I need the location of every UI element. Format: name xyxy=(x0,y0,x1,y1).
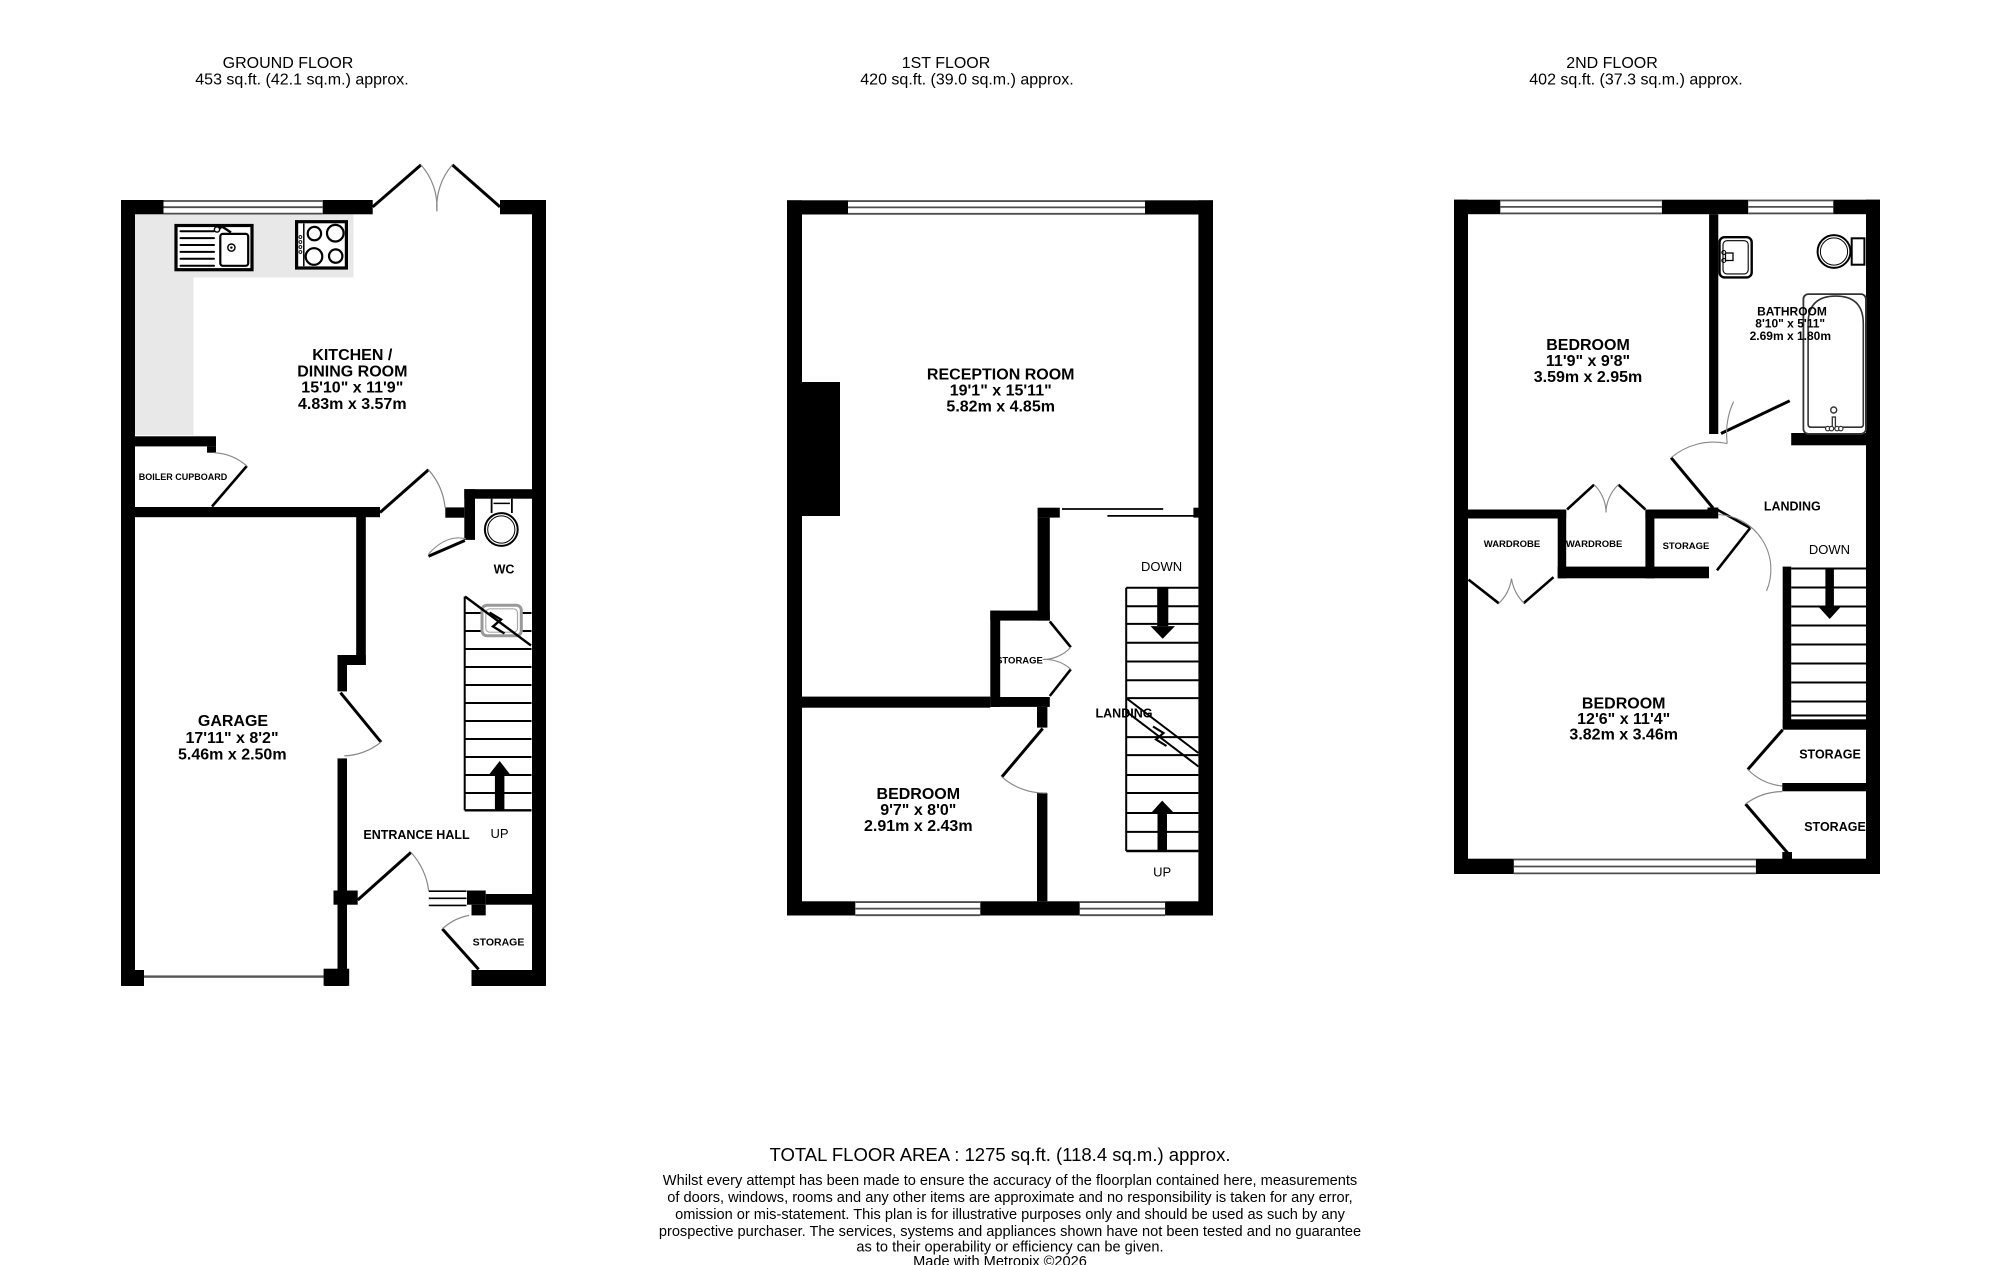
svg-text:5.82m x 4.85m: 5.82m x 4.85m xyxy=(946,399,1055,416)
svg-text:BEDROOM: BEDROOM xyxy=(1546,337,1630,354)
svg-text:5.46m x 2.50m: 5.46m x 2.50m xyxy=(178,747,287,764)
svg-text:WC: WC xyxy=(494,563,515,577)
svg-text:17'11" x 8'2": 17'11" x 8'2" xyxy=(185,730,278,747)
svg-text:3.82m x 3.46m: 3.82m x 3.46m xyxy=(1569,727,1678,744)
svg-text:prospective purchaser. The ser: prospective purchaser. The services, sys… xyxy=(659,1224,1361,1240)
svg-text:11'9" x 9'8": 11'9" x 9'8" xyxy=(1546,353,1630,370)
svg-text:2.91m x 2.43m: 2.91m x 2.43m xyxy=(864,818,973,835)
svg-text:402 sq.ft. (37.3 sq.m.) approx: 402 sq.ft. (37.3 sq.m.) approx. xyxy=(1529,72,1742,89)
svg-text:of doors, windows, rooms and a: of doors, windows, rooms and any other i… xyxy=(667,1190,1352,1206)
svg-text:4.83m x 3.57m: 4.83m x 3.57m xyxy=(298,396,407,413)
svg-text:LANDING: LANDING xyxy=(1096,707,1153,721)
svg-text:KITCHEN /: KITCHEN / xyxy=(312,347,393,364)
svg-text:WARDROBE: WARDROBE xyxy=(1484,539,1540,550)
svg-text:BOILER CUPBOARD: BOILER CUPBOARD xyxy=(139,472,228,482)
svg-text:DOWN: DOWN xyxy=(1141,559,1182,574)
svg-text:DINING ROOM: DINING ROOM xyxy=(297,363,407,380)
svg-text:9'7" x 8'0": 9'7" x 8'0" xyxy=(880,802,956,819)
svg-text:19'1" x 15'11": 19'1" x 15'11" xyxy=(950,383,1052,400)
svg-text:1ST FLOOR: 1ST FLOOR xyxy=(902,55,991,72)
svg-text:GROUND FLOOR: GROUND FLOOR xyxy=(223,55,354,72)
svg-text:LANDING: LANDING xyxy=(1764,499,1821,513)
svg-text:STORAGE: STORAGE xyxy=(1799,748,1861,762)
svg-text:RECEPTION ROOM: RECEPTION ROOM xyxy=(927,367,1075,384)
svg-text:Made with Metropix ©2026: Made with Metropix ©2026 xyxy=(913,1254,1087,1265)
svg-text:GARAGE: GARAGE xyxy=(198,713,269,730)
svg-text:DOWN: DOWN xyxy=(1809,542,1850,557)
svg-text:omission or mis-statement. Thi: omission or mis-statement. This plan is … xyxy=(675,1207,1345,1223)
svg-text:BEDROOM: BEDROOM xyxy=(1582,696,1666,713)
svg-text:453 sq.ft. (42.1 sq.m.) approx: 453 sq.ft. (42.1 sq.m.) approx. xyxy=(195,72,408,89)
svg-text:UP: UP xyxy=(490,826,508,841)
svg-text:12'6" x 11'4": 12'6" x 11'4" xyxy=(1577,711,1670,728)
svg-text:15'10" x 11'9": 15'10" x 11'9" xyxy=(301,380,403,397)
svg-text:3.59m x 2.95m: 3.59m x 2.95m xyxy=(1534,369,1643,386)
svg-text:UP: UP xyxy=(1153,864,1171,879)
svg-text:TOTAL FLOOR AREA : 1275 sq.ft.: TOTAL FLOOR AREA : 1275 sq.ft. (118.4 sq… xyxy=(770,1144,1231,1165)
svg-text:BEDROOM: BEDROOM xyxy=(877,786,961,803)
svg-text:STORAGE: STORAGE xyxy=(996,656,1043,667)
svg-text:STORAGE: STORAGE xyxy=(1804,820,1866,834)
svg-text:2ND FLOOR: 2ND FLOOR xyxy=(1566,55,1658,72)
svg-text:Whilst every attempt has been: Whilst every attempt has been made to en… xyxy=(663,1173,1357,1189)
svg-text:WARDROBE: WARDROBE xyxy=(1566,539,1622,550)
svg-text:ENTRANCE HALL: ENTRANCE HALL xyxy=(363,828,470,842)
svg-text:STORAGE: STORAGE xyxy=(473,937,525,949)
svg-text:STORAGE: STORAGE xyxy=(1663,541,1710,552)
svg-text:420 sq.ft. (39.0 sq.m.) approx: 420 sq.ft. (39.0 sq.m.) approx. xyxy=(860,72,1073,89)
svg-text:2.69m x 1.80m: 2.69m x 1.80m xyxy=(1750,329,1831,343)
